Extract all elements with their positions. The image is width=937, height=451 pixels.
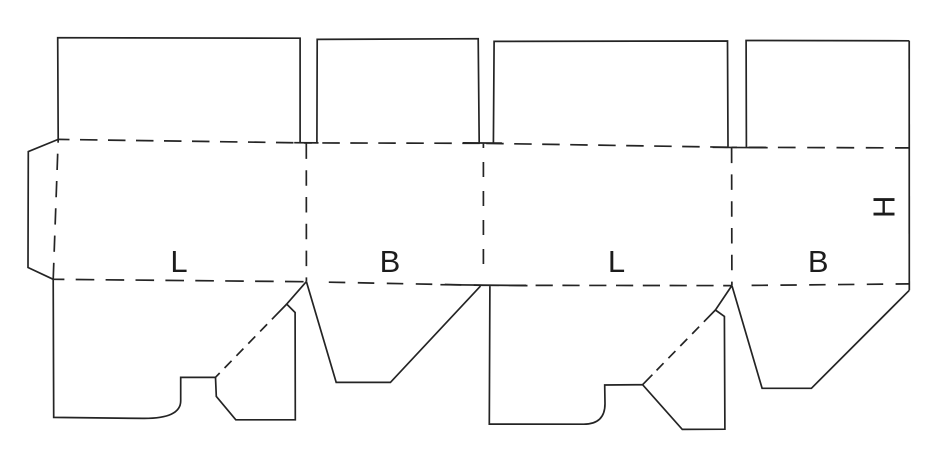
svg-text:B: B xyxy=(380,244,401,279)
svg-text:L: L xyxy=(170,244,187,279)
svg-text:H: H xyxy=(867,196,902,218)
svg-text:B: B xyxy=(808,244,829,279)
svg-text:L: L xyxy=(608,244,625,279)
